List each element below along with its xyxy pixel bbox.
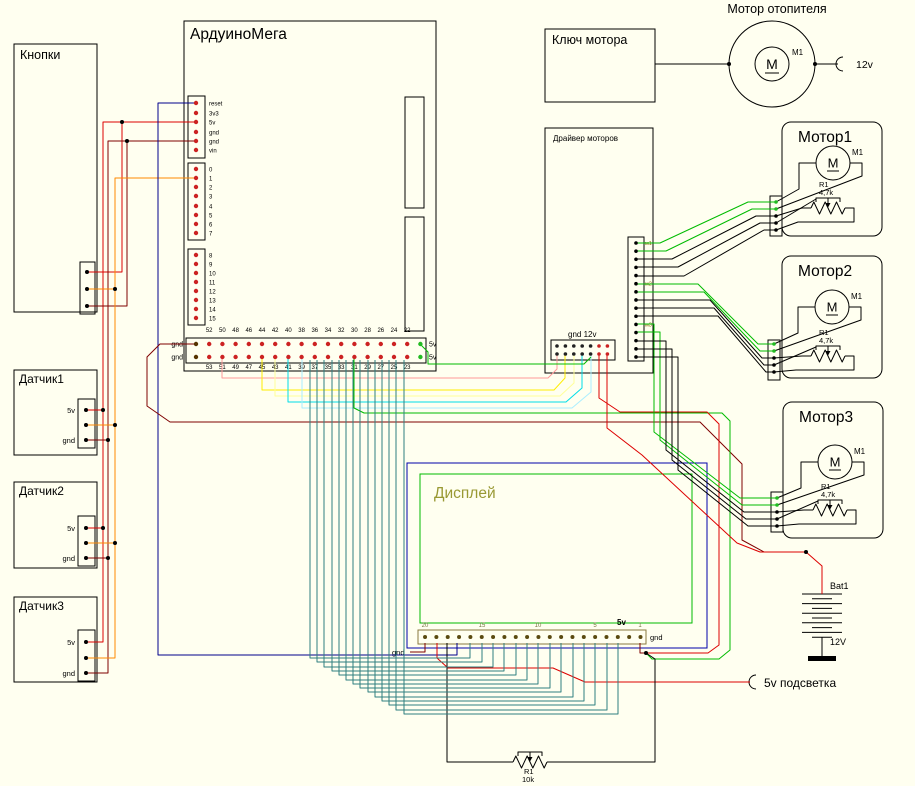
battery-voltage: 12V (830, 637, 846, 647)
circuit-diagram: КнопкиАрдуиноМегаreset3v35vgndgndvin0123… (0, 0, 915, 786)
arduino-bottom-pin-number: 27 (377, 365, 384, 371)
pin (313, 355, 317, 359)
pin (775, 503, 779, 507)
pin (634, 266, 638, 270)
wire (636, 202, 776, 243)
pin (194, 204, 198, 208)
wire (599, 354, 719, 653)
display-component: Дисплей201510515vgndgnd (392, 463, 707, 657)
arduino-bottom-pin-number: 30 (351, 328, 358, 334)
arduino-bottom-pin-number: 44 (259, 328, 266, 334)
buttons-box-component: Кнопки (14, 44, 97, 314)
display-5v-label: 5v (617, 618, 626, 627)
pin (434, 635, 438, 639)
pin (194, 120, 198, 124)
motor-m-glyph: M (766, 56, 778, 72)
pin (194, 253, 198, 257)
display-scale-number: 10 (535, 623, 542, 629)
motor2-component: Мотор2MM1R14,7k (768, 256, 882, 380)
pin (774, 214, 778, 218)
pin (194, 289, 198, 293)
arduino-component: АрдуиноМегаreset3v35vgndgndvin0123456789… (171, 21, 437, 371)
pin (326, 342, 330, 346)
arduino-bottom-pin-number: 31 (351, 365, 358, 371)
arduino-pin-label: 12 (209, 290, 216, 296)
pin (84, 671, 88, 675)
wire (310, 360, 470, 658)
wire (382, 360, 584, 701)
heater-motor-title: Мотор отопителя (727, 2, 826, 16)
display-scale-number: 15 (479, 623, 486, 629)
pin (772, 363, 776, 367)
motor-m-glyph: M (830, 455, 841, 470)
motor1-component: Мотор1MM1R14,7k (770, 122, 882, 236)
pin (247, 342, 251, 346)
pin (774, 221, 778, 225)
pin (405, 355, 409, 359)
arduino-bottom-pin-number: 22 (404, 328, 411, 334)
pin (634, 241, 638, 245)
driver-tap-label: м2 (645, 282, 652, 288)
arduino-bottom-pin-number: 41 (285, 365, 292, 371)
pin (233, 342, 237, 346)
pin (194, 139, 198, 143)
pin (194, 185, 198, 189)
pin (634, 314, 638, 318)
pin (365, 342, 369, 346)
arduino-pin-label: 9 (209, 263, 213, 269)
pin (564, 344, 568, 348)
arduino-bottom-pin-number: 28 (364, 328, 371, 334)
arduino-pin-label: 14 (209, 308, 216, 314)
arduino-power-connector (405, 217, 424, 331)
arduino-bottom-pin-number: 26 (377, 328, 384, 334)
pin (352, 342, 356, 346)
pin (260, 342, 264, 346)
arduino-pin-header (188, 163, 205, 240)
pin (247, 355, 251, 359)
wire (447, 643, 513, 762)
junction-dot (113, 541, 117, 545)
pin (634, 290, 638, 294)
pin (589, 344, 593, 348)
pin (634, 331, 638, 335)
arduino-bottom-pin-number: 40 (285, 328, 292, 334)
arduino-pin-label: 4 (209, 205, 213, 211)
pin (597, 344, 601, 348)
sensor3-component: Датчик35vgnd (14, 597, 97, 682)
arduino-pin-label: reset (209, 102, 223, 108)
pin (84, 640, 88, 644)
pin (313, 342, 317, 346)
motor-m1-label: M1 (854, 447, 866, 456)
sensor-title: Датчик3 (19, 599, 64, 613)
wire (262, 354, 565, 390)
wire (375, 360, 573, 697)
pin (207, 355, 211, 359)
arduino-pin-label: 6 (209, 223, 213, 229)
pin (84, 656, 88, 660)
motor-m1-label: M1 (852, 148, 864, 157)
pin (627, 635, 631, 639)
pin (365, 355, 369, 359)
motor-title: Мотор1 (798, 129, 852, 146)
arduino-usb-connector (405, 97, 424, 208)
pin (299, 342, 303, 346)
sensor-pin-label: gnd (62, 669, 75, 678)
arduino-bottom-pin-number: 25 (391, 365, 398, 371)
arduino-bottom-pin-number: 43 (272, 365, 279, 371)
wire (636, 292, 774, 351)
pin (634, 306, 638, 310)
junction-dot (106, 556, 110, 560)
wire (636, 209, 776, 251)
pin (639, 635, 643, 639)
arduino-bottom-pin-number: 49 (232, 365, 239, 371)
arduino-bottom-pin-number: 48 (232, 328, 239, 334)
pin (194, 307, 198, 311)
pin (194, 222, 198, 226)
pin (775, 496, 779, 500)
pin (286, 355, 290, 359)
pin (194, 298, 198, 302)
arduino-bottom-pin-number: 47 (245, 365, 252, 371)
arduino-pin-label: 13 (209, 299, 216, 305)
pin (194, 194, 198, 198)
display-title: Дисплей (434, 485, 496, 502)
wire (437, 643, 750, 682)
pin (194, 342, 198, 346)
pin (606, 344, 610, 348)
pin (194, 280, 198, 284)
pin (326, 355, 330, 359)
pin (491, 635, 495, 639)
pin (634, 323, 638, 327)
pin (423, 635, 427, 639)
pin (772, 370, 776, 374)
pin (604, 635, 608, 639)
backlight-label: 5v подсветка (764, 676, 836, 690)
pin (379, 342, 383, 346)
motor-m-glyph: M (828, 156, 839, 171)
wire (324, 360, 493, 667)
pin (559, 635, 563, 639)
pin (220, 342, 224, 346)
arduino-pin-label: 5v (209, 121, 215, 127)
pin (418, 355, 422, 359)
pin (392, 342, 396, 346)
pin (606, 352, 610, 356)
wire (636, 223, 776, 267)
pin (564, 352, 568, 356)
arduino-bottom-pin-number: 37 (311, 365, 318, 371)
pin (582, 635, 586, 639)
display-pin-header (418, 630, 646, 644)
display-scale-number: 20 (422, 623, 429, 629)
wire (302, 354, 591, 408)
pin (774, 207, 778, 211)
contrast-pot-component: R110k (513, 752, 547, 784)
pin (548, 635, 552, 639)
driver-bottom-connector (551, 340, 615, 360)
sensor-pin-label: 5v (67, 524, 75, 533)
pin (593, 635, 597, 639)
arduino-bottom-pin-number: 50 (219, 328, 226, 334)
sensor-pin-label: gnd (62, 436, 75, 445)
arduino-pin-label: 8 (209, 254, 213, 260)
pin (194, 355, 198, 359)
pin (572, 344, 576, 348)
pin (589, 352, 593, 356)
pin (772, 356, 776, 360)
pin (616, 635, 620, 639)
arduino-bottom-pin-number: 42 (272, 328, 279, 334)
motor-connector (768, 340, 780, 380)
wires-layer (86, 64, 838, 762)
junction-dot (644, 651, 648, 655)
pin (194, 231, 198, 235)
pin (339, 342, 343, 346)
arduino-5v-label: 5v (429, 342, 437, 349)
pin (634, 274, 638, 278)
pin (580, 344, 584, 348)
driver-gnd12v-label: gnd 12v (568, 330, 596, 339)
pin (418, 342, 422, 346)
wire (158, 103, 457, 655)
buttons-box-title: Кнопки (20, 48, 60, 62)
pin (555, 352, 559, 356)
pin (457, 635, 461, 639)
arduino-bottom-pin-number: 53 (206, 365, 213, 371)
wire (86, 122, 196, 642)
arduino-box (184, 21, 436, 371)
driver-title: Драйвер моторов (553, 134, 618, 143)
motor3-component: Мотор3MM1R14,7k (771, 402, 883, 538)
arduino-5v-label: 5v (429, 355, 437, 362)
motor-key-title: Ключ мотора (552, 33, 627, 47)
pin (299, 355, 303, 359)
pin (84, 423, 88, 427)
contrast-pot-value: 10k (522, 775, 534, 784)
junction-dot (804, 550, 808, 554)
motor-title: Мотор3 (799, 409, 853, 426)
motor-m1-label: M1 (851, 292, 863, 301)
arduino-bottom-pin-number: 52 (206, 328, 213, 334)
pin (634, 282, 638, 286)
arduino-bottom-pin-number: 34 (325, 328, 332, 334)
arduino-pin-label: 3v3 (209, 112, 219, 118)
pin (597, 352, 601, 356)
pin (194, 167, 198, 171)
backlight-terminal: 5v подсветка (749, 675, 836, 690)
arduino-pin-label: 2 (209, 186, 213, 192)
arduino-bottom-pin-number: 38 (298, 328, 305, 334)
pin (85, 287, 89, 291)
motor-r1-value: 4,7k (821, 490, 835, 499)
arduino-bottom-pin-number: 24 (391, 328, 398, 334)
sensor-pin-label: 5v (67, 638, 75, 647)
pin (772, 349, 776, 353)
pin (260, 355, 264, 359)
heater-motor-component: Мотор отопителяMM112v (727, 2, 873, 107)
sensor-pin-label: gnd (62, 554, 75, 563)
wire (636, 216, 776, 259)
battery-component: Bat112V (802, 581, 849, 661)
arduino-pin-label: 10 (209, 272, 216, 278)
pin (634, 355, 638, 359)
sensor1-component: Датчик15vgnd (14, 370, 97, 455)
pin (634, 249, 638, 253)
wire (353, 360, 538, 684)
arduino-pin-label: 0 (209, 168, 213, 174)
motor-r1-value: 4,7k (819, 336, 833, 345)
wire (636, 230, 776, 276)
arduino-pin-label: 3 (209, 195, 213, 201)
pin (85, 270, 89, 274)
junction-dot (113, 287, 117, 291)
pin (273, 355, 277, 359)
wire (547, 653, 655, 762)
arduino-bottom-pin-number: 23 (404, 365, 411, 371)
pin (194, 130, 198, 134)
pin (352, 355, 356, 359)
arduino-bottom-pin-number: 46 (245, 328, 252, 334)
pin (207, 342, 211, 346)
arduino-gnd-label: gnd (171, 342, 183, 349)
schematic-canvas: КнопкиАрдуиноМегаreset3v35vgndgndvin0123… (0, 0, 915, 786)
arduino-gnd-label: gnd (171, 355, 183, 362)
battery-name: Bat1 (830, 581, 849, 591)
arduino-pin-label: vin (209, 149, 217, 155)
motor-internal-wire (777, 510, 856, 526)
pin (194, 316, 198, 320)
pin (634, 339, 638, 343)
pin (85, 304, 89, 308)
wire (368, 360, 561, 692)
junction-dot (120, 120, 124, 124)
arduino-pin-label: 1 (209, 177, 213, 183)
junction-dot (813, 62, 817, 66)
pin (194, 111, 198, 115)
driver-tap-label: м3 (645, 322, 652, 328)
arduino-pin-label: 7 (209, 232, 213, 238)
arduino-pin-label: 15 (209, 317, 216, 323)
sensor-title: Датчик2 (19, 484, 64, 498)
pin (194, 271, 198, 275)
display-gnd-left-label: gnd (392, 648, 405, 657)
arduino-pin-label: gnd (209, 140, 219, 146)
driver-tap-label: м1 (645, 241, 652, 247)
pin (405, 342, 409, 346)
pin (480, 635, 484, 639)
junction-dot (727, 62, 731, 66)
pin (572, 352, 576, 356)
pin (339, 355, 343, 359)
pin (194, 101, 198, 105)
pin (536, 635, 540, 639)
pin (634, 257, 638, 261)
pin (634, 347, 638, 351)
motor-title: Мотор2 (798, 263, 852, 280)
pin (580, 352, 584, 356)
pin (273, 342, 277, 346)
pin (570, 635, 574, 639)
pin (775, 510, 779, 514)
sensor-pin-label: 5v (67, 406, 75, 415)
pin (446, 635, 450, 639)
sensor2-component: Датчик25vgnd (14, 482, 97, 568)
display-scale-number: 1 (638, 623, 642, 629)
junction-dot (113, 423, 117, 427)
arduino-pin-header (188, 249, 205, 325)
arduino-pin-label: 5 (209, 214, 213, 220)
wire (87, 122, 122, 272)
pin (233, 355, 237, 359)
arduino-pin-label: 11 (209, 281, 216, 287)
pin (774, 228, 778, 232)
wire (87, 141, 127, 306)
arduino-pin-label: gnd (209, 131, 219, 137)
pin (194, 176, 198, 180)
wire (636, 324, 777, 498)
pin (525, 635, 529, 639)
pin (555, 344, 559, 348)
arduino-bottom-pin-number: 36 (311, 328, 318, 334)
junction-dot (101, 526, 105, 530)
display-scale-number: 5 (593, 623, 597, 629)
heater-motor-m1-label: M1 (792, 48, 804, 57)
backlight-terminal-icon (749, 675, 756, 689)
pin (84, 408, 88, 412)
junction-dot (125, 139, 129, 143)
arduino-bottom-pin-number: 51 (219, 365, 226, 371)
pin (194, 262, 198, 266)
pin (379, 355, 383, 359)
pin (775, 517, 779, 521)
pin (772, 342, 776, 346)
buttons-box (14, 44, 97, 312)
pin (84, 438, 88, 442)
motor-m-glyph: M (827, 300, 838, 315)
pin (84, 526, 88, 530)
wire (317, 360, 482, 662)
pin (194, 213, 198, 217)
motor-internal-wire (774, 356, 854, 372)
pin (774, 200, 778, 204)
arduino-bottom-pin-number: 32 (338, 328, 345, 334)
junction-dot (106, 438, 110, 442)
display-gnd-right-label: gnd (650, 633, 663, 642)
motor-key-component: Ключ мотора (545, 29, 655, 102)
pin (502, 635, 506, 639)
pin (84, 556, 88, 560)
pin (286, 342, 290, 346)
pin (775, 524, 779, 528)
pin (634, 298, 638, 302)
arduino-title: АрдуиноМега (190, 26, 287, 43)
pin (194, 148, 198, 152)
pin (514, 635, 518, 639)
supply-12v-label: 12v (856, 59, 874, 71)
arduino-bottom-pin-number: 35 (325, 365, 332, 371)
junction-dot (101, 408, 105, 412)
pin (84, 541, 88, 545)
pin (220, 355, 224, 359)
pin (468, 635, 472, 639)
motor-internal-wire (776, 208, 854, 230)
sensor-title: Датчик1 (19, 372, 64, 386)
pin (392, 355, 396, 359)
